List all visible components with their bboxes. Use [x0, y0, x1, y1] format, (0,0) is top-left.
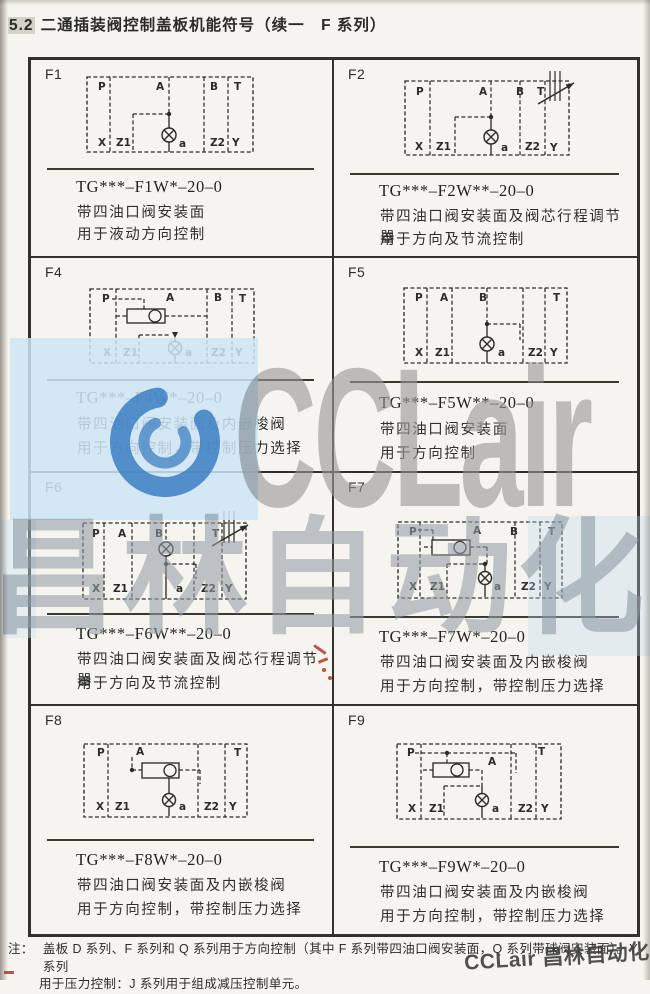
hydraulic-schematic: PABTXZ1aZ2Y — [403, 287, 573, 370]
separator-line — [350, 381, 619, 383]
svg-text:a: a — [179, 801, 186, 813]
footnote-line-1: 盖板 D 系列、F 系列和 Q 系列用于方向控制（其中 F 系列带四油口阀安装面… — [43, 941, 644, 976]
cell-f8: F8 PATXZ1aZ2Y TG***–F8W*–20–0 带四油口阀安装面及内… — [31, 706, 334, 934]
svg-text:Y: Y — [549, 142, 558, 154]
cell-code: F9 — [348, 712, 365, 728]
svg-text:P: P — [97, 747, 105, 759]
description-line-1: 带四油口阀安装面 — [77, 201, 206, 222]
svg-text:Z1: Z1 — [113, 583, 128, 595]
svg-text:A: A — [166, 292, 175, 304]
footnote-line-2: 用于压力控制：J 系列用于组成减压控制单元。 — [39, 976, 644, 994]
svg-text:B: B — [516, 86, 524, 98]
svg-text:Z1: Z1 — [436, 141, 451, 153]
svg-text:A: A — [488, 756, 497, 768]
description-line-2: 用于方向控制，带控制压力选择 — [77, 437, 302, 458]
svg-text:P: P — [102, 293, 110, 305]
description-line-2: 用于方向控制，带控制压力选择 — [380, 905, 605, 926]
svg-text:P: P — [98, 81, 106, 93]
svg-text:T: T — [537, 86, 545, 98]
svg-text:a: a — [501, 142, 508, 154]
footnote-label: 注： — [8, 941, 34, 976]
svg-text:X: X — [96, 801, 104, 813]
svg-text:a: a — [185, 347, 192, 359]
svg-text:T: T — [234, 81, 242, 93]
svg-text:T: T — [212, 528, 220, 540]
model-code: TG***–F1W*–20–0 — [76, 177, 223, 197]
cell-code: F6 — [45, 479, 62, 495]
hydraulic-schematic: PABTXZ1aZ2Y — [86, 76, 256, 159]
svg-text:Z1: Z1 — [429, 803, 444, 815]
description-line-2: 用于方向控制，带控制压力选择 — [380, 675, 605, 696]
svg-text:Y: Y — [228, 801, 237, 813]
footnote: 注： 盖板 D 系列、F 系列和 Q 系列用于方向控制（其中 F 系列带四油口阀… — [8, 941, 644, 994]
cell-code: F2 — [348, 66, 365, 82]
cell-code: F8 — [45, 712, 62, 728]
svg-text:Y: Y — [231, 137, 240, 149]
svg-text:T: T — [538, 746, 546, 758]
svg-text:Z1: Z1 — [435, 347, 450, 359]
separator-line — [47, 379, 314, 381]
svg-text:Z1: Z1 — [115, 801, 130, 813]
svg-text:B: B — [510, 526, 518, 538]
svg-text:Z2: Z2 — [528, 347, 543, 359]
svg-text:B: B — [479, 292, 487, 304]
separator-line — [47, 613, 314, 615]
description-line-2: 用于方向控制 — [380, 442, 477, 463]
svg-text:Z2: Z2 — [210, 137, 225, 149]
svg-text:a: a — [176, 583, 183, 595]
svg-text:A: A — [156, 81, 165, 93]
cell-f4: F4 PABTXZ1aZ2Y TG***–F4W*–20–0 带四油口阀安装面及… — [31, 258, 334, 473]
scan-edge-right — [643, 0, 650, 980]
svg-text:T: T — [553, 292, 561, 304]
svg-text:A: A — [118, 528, 127, 540]
description-line-1: 带四油口阀安装面及内嵌梭阀 — [77, 413, 286, 434]
svg-text:Z1: Z1 — [123, 347, 138, 359]
model-code: TG***–F8W*–20–0 — [76, 850, 223, 870]
description-line-1: 带四油口阀安装面 — [380, 418, 509, 439]
svg-text:Z2: Z2 — [521, 581, 536, 593]
cell-f1: F1 PABTXZ1aZ2Y TG***–F1W*–20–0 带四油口阀安装面 … — [31, 60, 334, 258]
svg-text:B: B — [155, 528, 163, 540]
hydraulic-schematic: PATXZ1aZ2Y — [83, 743, 253, 826]
model-code: TG***–F5W**–20–0 — [379, 393, 534, 413]
svg-text:Z2: Z2 — [518, 803, 533, 815]
cell-f9: F9 PATXZ1aZ2Y TG***–F9W*–20–0 带四油口阀安装面及内… — [334, 706, 637, 934]
cell-code: F4 — [45, 264, 62, 280]
separator-line — [350, 846, 619, 848]
svg-text:Z1: Z1 — [116, 137, 131, 149]
svg-text:Z2: Z2 — [525, 141, 540, 153]
model-code: TG***–F2W**–20–0 — [379, 181, 534, 201]
svg-text:A: A — [473, 525, 482, 537]
cell-f6: F6 PABTXZ1aZ2Y TG***–F6W**–20–0 带四油口阀安装面… — [31, 473, 334, 706]
hydraulic-schematic: PABTXZ1aZ2Y — [82, 511, 266, 608]
model-code: TG***–F9W*–20–0 — [379, 857, 526, 877]
section-number: 5.2 — [8, 17, 35, 34]
hydraulic-schematic: PABTXZ1aZ2Y — [89, 288, 259, 373]
description-line-2: 用于方向控制，带控制压力选择 — [77, 898, 302, 919]
separator-line — [47, 168, 314, 170]
cell-f7: F7 PABTXZ1aZ2Y TG***–F7W*–20–0 带四油口阀安装面及… — [334, 473, 637, 706]
svg-text:P: P — [92, 528, 100, 540]
svg-text:Z2: Z2 — [204, 801, 219, 813]
svg-text:Z2: Z2 — [201, 583, 216, 595]
hydraulic-schematic: PATXZ1aZ2Y — [396, 743, 566, 828]
svg-text:X: X — [98, 137, 106, 149]
svg-text:P: P — [415, 292, 423, 304]
svg-text:X: X — [103, 347, 111, 359]
separator-line — [350, 616, 619, 618]
svg-text:T: T — [239, 293, 247, 305]
svg-text:A: A — [440, 292, 449, 304]
svg-text:A: A — [479, 86, 488, 98]
separator-line — [350, 173, 619, 175]
hydraulic-schematic: PABTXZ1aZ2Y — [397, 521, 567, 606]
svg-text:X: X — [415, 347, 423, 359]
cell-code: F7 — [348, 479, 365, 495]
description-line-2: 用于液动方向控制 — [77, 223, 206, 244]
svg-text:a: a — [492, 803, 499, 815]
section-title-text: 二通插装阀控制盖板机能符号（续一 F 系列） — [41, 17, 387, 34]
svg-text:a: a — [179, 138, 186, 150]
hydraulic-schematic: PABTXZ1aZ2Y — [404, 71, 582, 164]
svg-text:T: T — [548, 526, 556, 538]
svg-text:X: X — [92, 583, 100, 595]
cell-f5: F5 PABTXZ1aZ2Y TG***–F5W**–20–0 带四油口阀安装面… — [334, 258, 637, 473]
svg-text:P: P — [407, 747, 415, 759]
symbol-table: F1 PABTXZ1aZ2Y TG***–F1W*–20–0 带四油口阀安装面 … — [28, 57, 640, 937]
svg-text:Y: Y — [549, 347, 558, 359]
svg-text:Z1: Z1 — [430, 581, 445, 593]
svg-text:P: P — [416, 86, 424, 98]
svg-text:Y: Y — [540, 803, 549, 815]
page-title: 5.2二通插装阀控制盖板机能符号（续一 F 系列） — [8, 13, 386, 35]
svg-text:X: X — [415, 141, 423, 153]
svg-text:Y: Y — [234, 347, 243, 359]
svg-text:X: X — [408, 803, 416, 815]
svg-text:X: X — [409, 581, 417, 593]
svg-text:a: a — [494, 581, 501, 593]
svg-text:a: a — [498, 347, 505, 359]
model-code: TG***–F7W*–20–0 — [379, 627, 526, 647]
cell-code: F5 — [348, 264, 365, 280]
svg-text:P: P — [409, 526, 417, 538]
cell-f2: F2 PABTXZ1aZ2Y TG***–F2W**–20–0 带四油口阀安装面… — [334, 60, 637, 258]
description-line-1: 带四油口阀安装面及内嵌梭阀 — [380, 651, 589, 672]
description-line-1: 带四油口阀安装面及内嵌梭阀 — [77, 874, 286, 895]
svg-text:T: T — [234, 747, 242, 759]
svg-text:A: A — [136, 746, 145, 758]
svg-text:Y: Y — [543, 581, 552, 593]
description-line-2: 用于方向及节流控制 — [77, 672, 222, 693]
svg-text:B: B — [210, 81, 218, 93]
model-code: TG***–F6W**–20–0 — [76, 624, 231, 644]
scan-edge-left — [0, 0, 8, 980]
model-code: TG***–F4W*–20–0 — [76, 388, 223, 408]
cell-code: F1 — [45, 66, 62, 82]
separator-line — [47, 839, 314, 841]
description-line-2: 用于方向及节流控制 — [380, 228, 525, 249]
svg-text:Y: Y — [224, 583, 233, 595]
svg-text:B: B — [214, 292, 222, 304]
scan-edge-top — [0, 0, 650, 5]
svg-text:Z2: Z2 — [211, 347, 226, 359]
description-line-1: 带四油口阀安装面及内嵌梭阀 — [380, 881, 589, 902]
